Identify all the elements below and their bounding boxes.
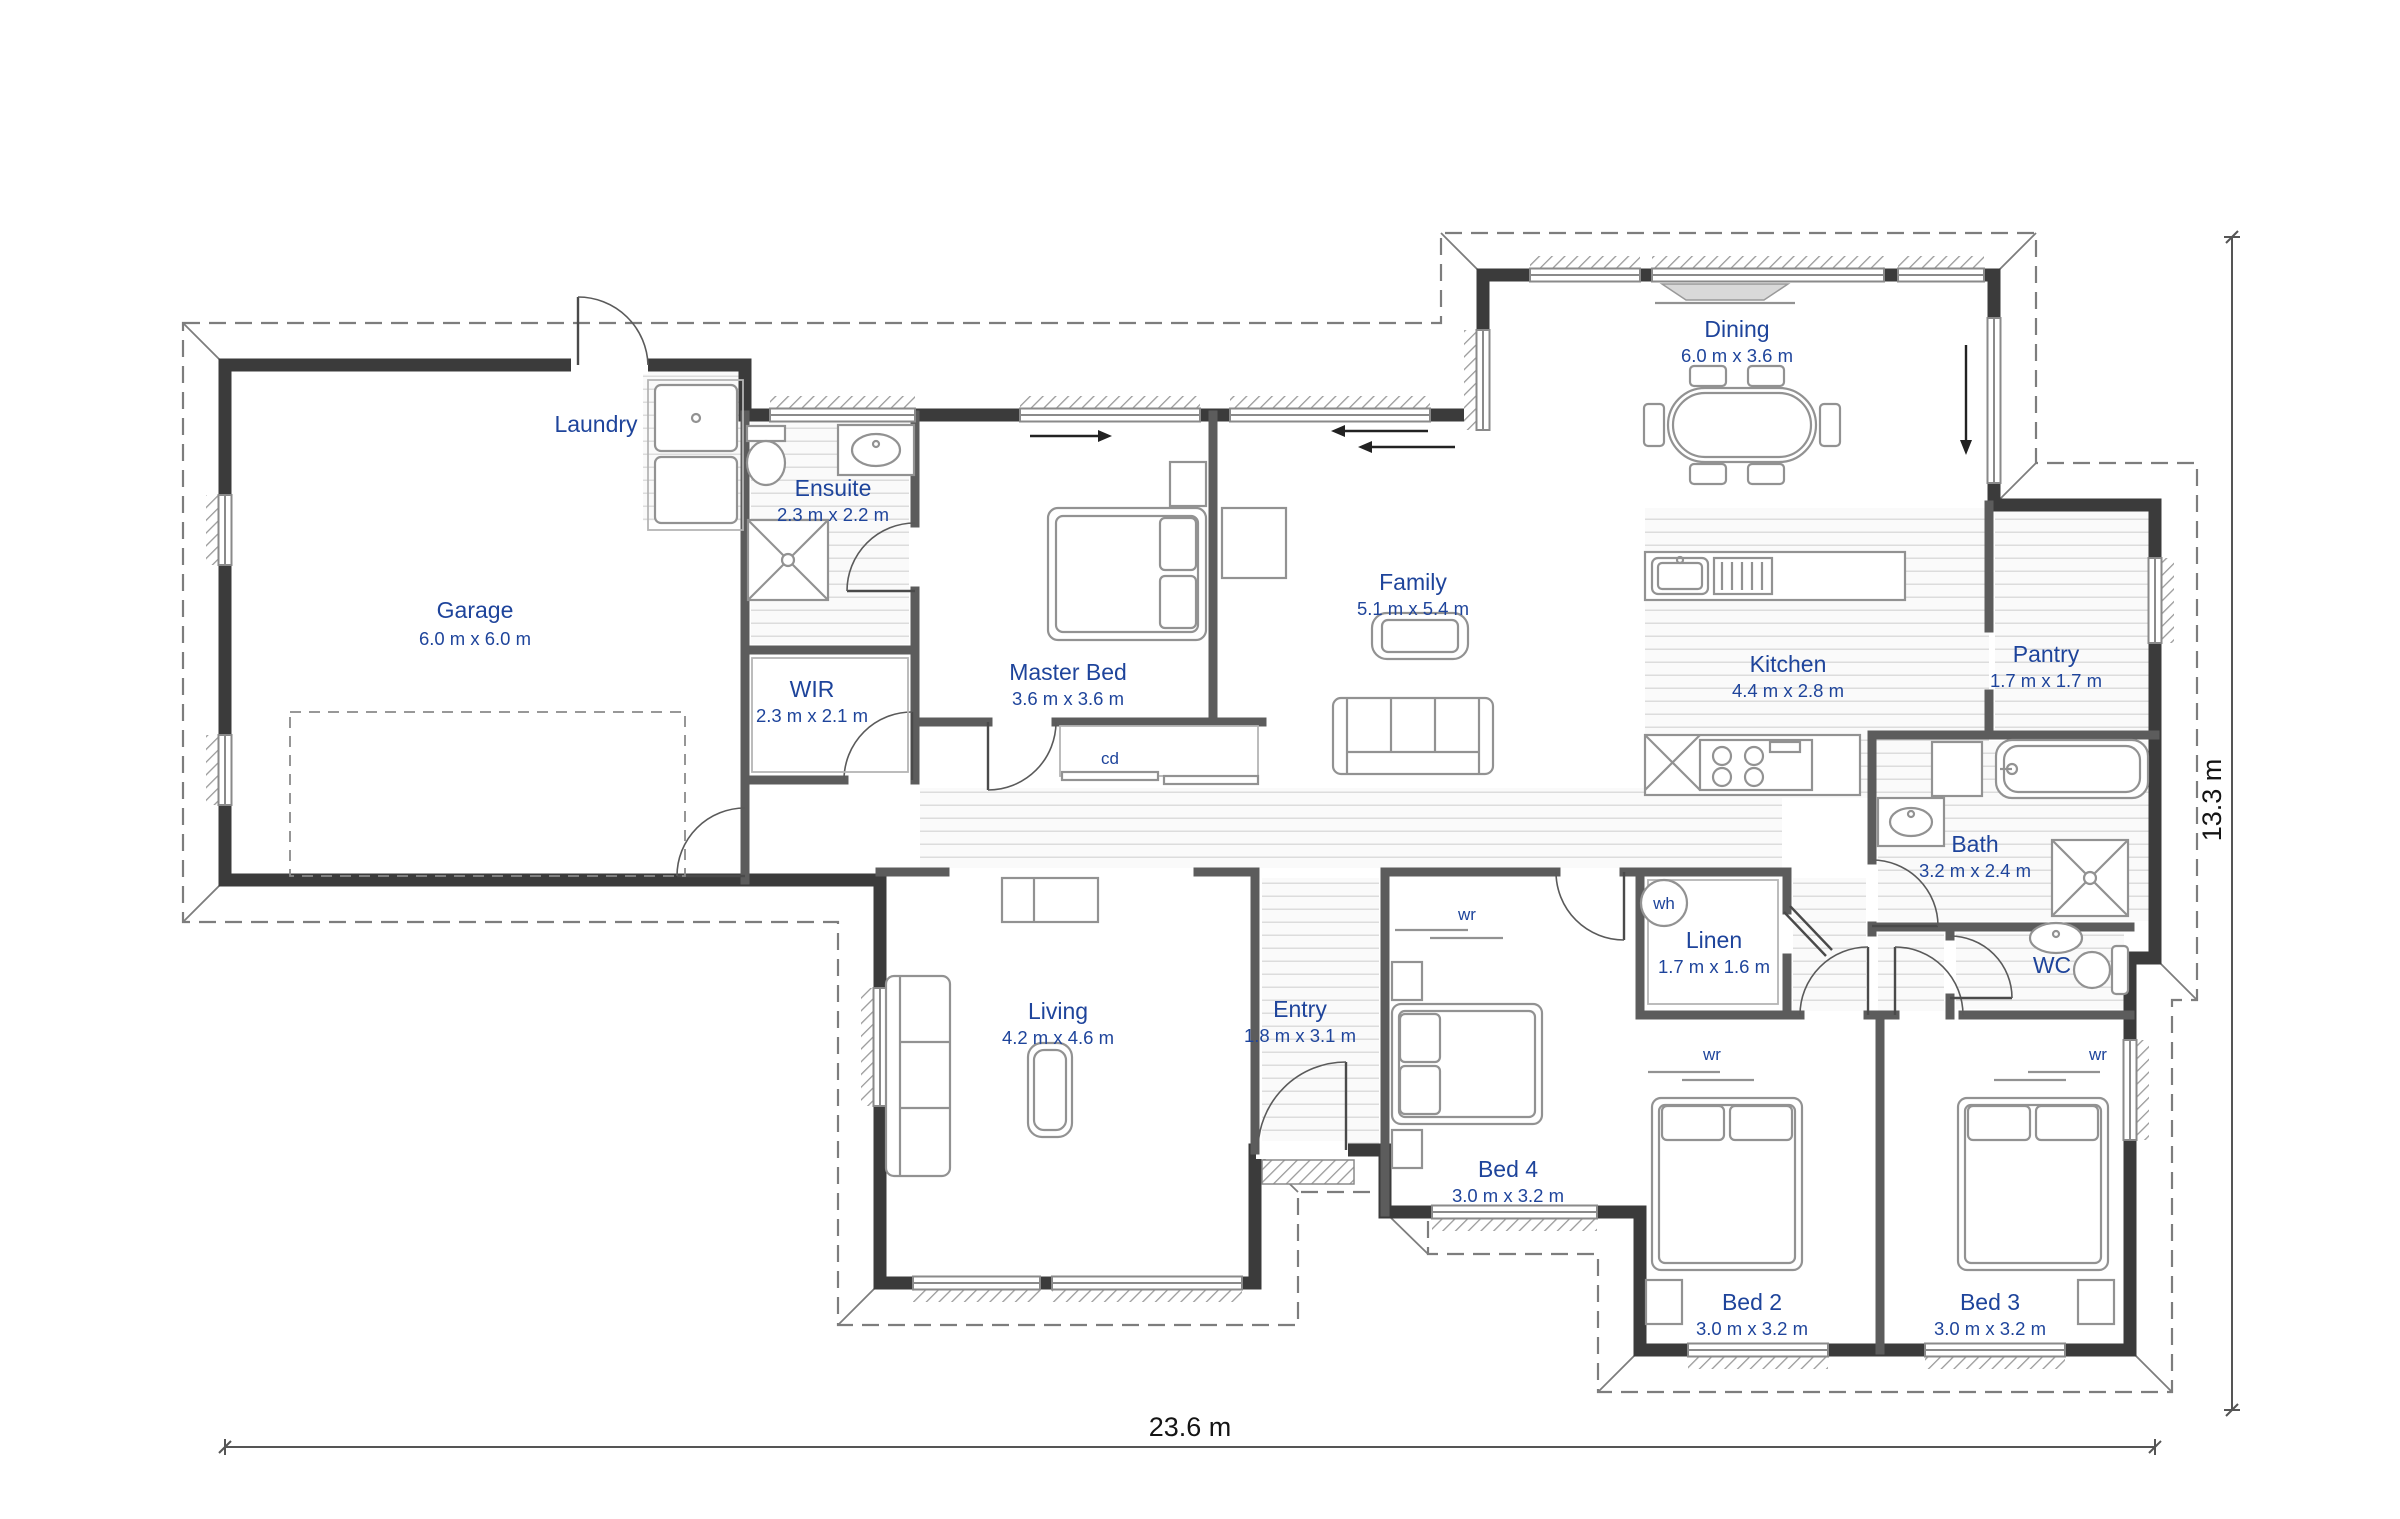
room-label-pantry: Pantry bbox=[2013, 641, 2080, 667]
room-label-dining: Dining bbox=[1704, 316, 1769, 342]
bathtub-icon bbox=[1996, 740, 2148, 798]
kitchen-bench-cooktop-icon bbox=[1645, 735, 1860, 795]
living-coffee-table-icon bbox=[1028, 1043, 1072, 1137]
wc-basin-icon bbox=[2030, 923, 2082, 953]
room-dims-living: 4.2 m x 4.6 m bbox=[1002, 1027, 1114, 1048]
washing-machine-icon bbox=[655, 385, 737, 451]
bed4-bed-icon bbox=[1392, 1004, 1542, 1124]
wardrobe-label-bed3: wr bbox=[2088, 1045, 2107, 1064]
room-dims-garage: 6.0 m x 6.0 m bbox=[419, 628, 531, 649]
floor-plan-page: Garage 6.0 m x 6.0 m Laundry Ensuite 2.3… bbox=[0, 0, 2400, 1514]
family-cabinet bbox=[1222, 508, 1286, 578]
room-dims-dining: 6.0 m x 3.6 m bbox=[1681, 345, 1793, 366]
room-label-bed3: Bed 3 bbox=[1960, 1289, 2020, 1315]
room-label-bed2: Bed 2 bbox=[1722, 1289, 1782, 1315]
room-dims-bed2: 3.0 m x 3.2 m bbox=[1696, 1318, 1808, 1339]
bed3-nightstand bbox=[2078, 1280, 2114, 1324]
room-dims-linen: 1.7 m x 1.6 m bbox=[1658, 956, 1770, 977]
room-dims-bed3: 3.0 m x 3.2 m bbox=[1934, 1318, 2046, 1339]
room-label-garage: Garage bbox=[437, 597, 514, 623]
bath-cabinet bbox=[1932, 742, 1982, 796]
room-dims-family: 5.1 m x 5.4 m bbox=[1357, 598, 1469, 619]
bed3-bed-icon bbox=[1958, 1098, 2108, 1270]
bed4-nightstand bbox=[1392, 1130, 1422, 1168]
wardrobe-label-bed2: wr bbox=[1702, 1045, 1721, 1064]
room-dims-bath: 3.2 m x 2.4 m bbox=[1919, 860, 2031, 881]
laundry-door-opening bbox=[571, 356, 648, 374]
width-dimension-label: 23.6 m bbox=[1149, 1412, 1232, 1442]
room-label-wir: WIR bbox=[790, 676, 835, 702]
room-label-wc: WC bbox=[2033, 952, 2071, 978]
family-coffee-table-icon bbox=[1372, 613, 1468, 659]
room-label-ensuite: Ensuite bbox=[795, 475, 872, 501]
ensuite-toilet-icon bbox=[747, 426, 785, 485]
kitchen-island-icon bbox=[1645, 552, 1905, 600]
master-bed-icon bbox=[1048, 508, 1206, 640]
bath-shower-icon bbox=[2052, 840, 2128, 916]
family-sofa-icon bbox=[1333, 698, 1493, 774]
room-label-kitchen: Kitchen bbox=[1750, 651, 1827, 677]
room-dims-kitchen: 4.4 m x 2.8 m bbox=[1732, 680, 1844, 701]
room-label-living: Living bbox=[1028, 998, 1088, 1024]
bed2-nightstand bbox=[1646, 1280, 1682, 1324]
water-heater-label: wh bbox=[1652, 894, 1675, 913]
bed4-nightstand bbox=[1392, 962, 1422, 1000]
room-dims-pantry: 1.7 m x 1.7 m bbox=[1990, 670, 2102, 691]
room-label-laundry: Laundry bbox=[554, 411, 638, 437]
room-label-entry: Entry bbox=[1273, 996, 1327, 1022]
floor-plan-canvas: Garage 6.0 m x 6.0 m Laundry Ensuite 2.3… bbox=[0, 0, 2400, 1514]
bed2-bed-icon bbox=[1652, 1098, 1802, 1270]
room-dims-wir: 2.3 m x 2.1 m bbox=[756, 705, 868, 726]
height-dimension-label: 13.3 m bbox=[2197, 759, 2227, 842]
room-dims-master-bed: 3.6 m x 3.6 m bbox=[1012, 688, 1124, 709]
room-label-family: Family bbox=[1379, 569, 1447, 595]
room-label-bath: Bath bbox=[1951, 831, 1998, 857]
living-sofa-icon bbox=[886, 976, 950, 1176]
width-dimension: 23.6 m bbox=[219, 1412, 2161, 1455]
ensuite-shower-icon bbox=[748, 520, 828, 600]
living-tv-unit-icon bbox=[1002, 878, 1098, 922]
room-dims-ensuite: 2.3 m x 2.2 m bbox=[777, 504, 889, 525]
closet-label-cd: cd bbox=[1101, 749, 1119, 768]
wardrobe-label-bed4: wr bbox=[1457, 905, 1476, 924]
entry-porch-slab bbox=[1262, 1160, 1354, 1184]
height-dimension: 13.3 m bbox=[2197, 231, 2240, 1416]
room-dims-entry: 1.8 m x 3.1 m bbox=[1244, 1025, 1356, 1046]
master-dresser bbox=[1170, 462, 1206, 506]
bath-vanity-icon bbox=[1878, 798, 1944, 846]
laundry-exterior-door bbox=[578, 297, 648, 365]
room-label-master-bed: Master Bed bbox=[1009, 659, 1127, 685]
room-label-bed4: Bed 4 bbox=[1478, 1156, 1538, 1182]
ensuite-vanity-icon bbox=[838, 425, 914, 475]
room-dims-bed4: 3.0 m x 3.2 m bbox=[1452, 1185, 1564, 1206]
entry-door-opening bbox=[1256, 1141, 1348, 1159]
room-label-linen: Linen bbox=[1686, 927, 1742, 953]
laundry-tub-icon bbox=[655, 457, 737, 523]
